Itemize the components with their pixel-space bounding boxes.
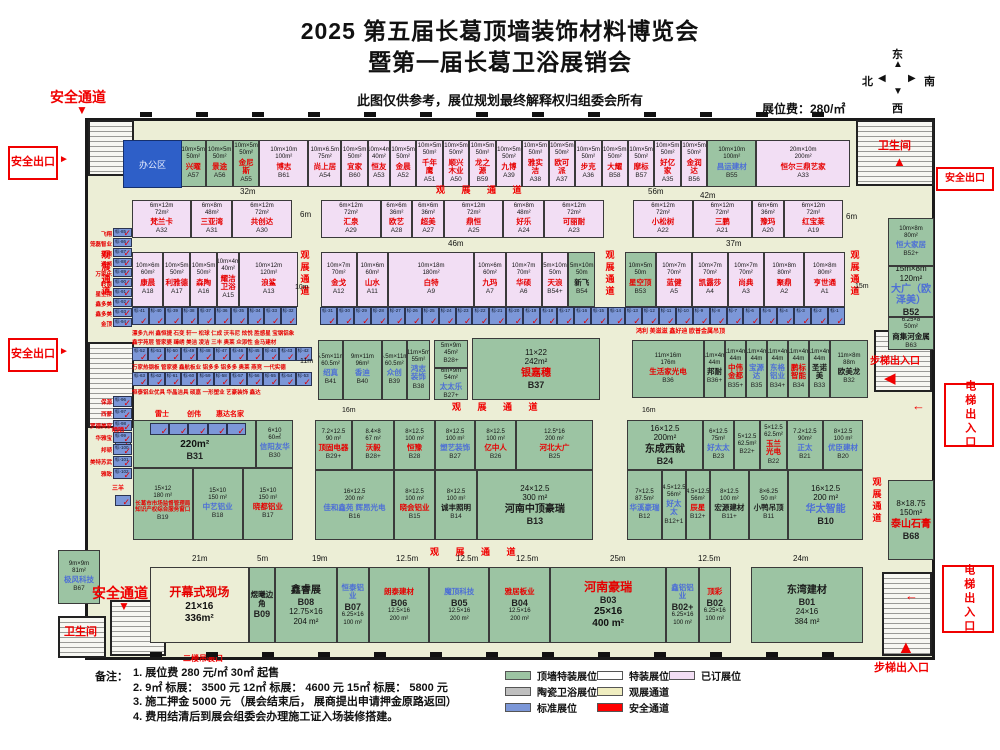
booth-B28: 8×12.5100 m²恒豫B28	[394, 420, 435, 470]
standard-booth-cell: 标-19✓	[523, 307, 540, 325]
standard-booth-cell: 标-93✓	[113, 308, 132, 317]
booth-name: 中艺铝业	[203, 503, 233, 511]
booth-dims: 5×12.5	[738, 434, 757, 441]
checkmark-icon: ✓	[222, 377, 230, 386]
booth-name: 摩标	[634, 163, 649, 171]
booth-area: 54m²	[444, 375, 458, 382]
booth-id: A23	[568, 227, 580, 235]
booth-id: B11+	[722, 513, 737, 521]
checkmark-icon: ✓	[786, 316, 794, 325]
vendor-names-label: 鸿利 美滋滋 鑫好迪 欧普金属吊顶	[636, 329, 725, 335]
checkmark-icon: ✓	[123, 308, 131, 317]
booth-dims: 6m×6m	[758, 203, 778, 210]
legend-swatch	[505, 671, 531, 680]
standard-booth-cell: 标-13✓	[625, 307, 642, 325]
vendor-label: 飞翔	[90, 230, 112, 238]
notes-label: 备注：	[95, 668, 128, 684]
standard-booth-cell: 标-40✓	[149, 307, 166, 325]
booth-area: 62.5m²	[738, 441, 757, 448]
booth-name: 星空顶	[629, 279, 652, 287]
standard-booth-cell: 标-97✓	[113, 408, 132, 419]
booth-area: 50m	[634, 270, 646, 277]
booth-id: B19	[157, 514, 169, 522]
checkmark-icon: ✓	[362, 316, 370, 325]
standard-booth-label: 标-41	[134, 308, 145, 314]
booth-name: 塑艺装饰	[440, 444, 470, 452]
booth-name: 东格铝业	[769, 364, 786, 381]
wall-columns	[150, 652, 863, 657]
booth-id: A24	[518, 227, 530, 235]
booth-name: 大耀	[607, 163, 622, 171]
booth-B55: 10m×10m100m²昌运建材B55	[707, 140, 756, 187]
vendor-label: 鑫多美	[90, 310, 112, 318]
standard-booth-label: 标-29	[356, 308, 367, 314]
booth-dims: 6m×12m	[651, 203, 675, 210]
standard-booth-cell: 标-49✓	[181, 347, 197, 361]
booth-id: B01	[799, 597, 816, 608]
checkmark-icon: ✓	[820, 316, 828, 325]
title-block: 2025 第五届长葛顶墙装饰材料博览会 暨第一届长葛卫浴展销会 此图仅供参考，展…	[0, 16, 1000, 109]
booth-name: 魔顶科技	[444, 588, 474, 596]
booth-B28+: 8.4×867 m²沃毅B28+	[352, 420, 394, 470]
standard-booth-cell: 标-41✓	[132, 307, 149, 325]
checkmark-icon: ✓	[173, 352, 181, 361]
standard-booth-cell: 标-37✓	[198, 307, 215, 325]
booth-id: A17	[171, 288, 183, 296]
booth-B20: 8×12.5100 m²优臣建材B20	[823, 420, 863, 470]
booth-A33: 20m×10m200m²恒尔三鼎艺家A33	[756, 140, 850, 187]
booth-name: 豫玛	[760, 218, 775, 226]
standard-booth-label: 标-5	[762, 308, 771, 314]
booth-name: 开幕式现场	[169, 586, 229, 599]
standard-booth-cell: 标-3✓	[794, 307, 811, 325]
booth-dims: 10m×5m	[471, 143, 495, 150]
booth-name: 好太太	[664, 500, 684, 517]
booth-name: 生活家光电	[649, 368, 687, 376]
dimension-label: 19m	[312, 555, 328, 563]
booth-area: 60m²	[365, 270, 379, 277]
booth-area: 44m	[772, 356, 784, 363]
booth-name: 森陶	[196, 279, 211, 287]
booth-name: 晓会铝业	[400, 504, 430, 512]
booth-dims: 24×12.5	[520, 484, 549, 494]
booth-name: 恒豫	[407, 444, 422, 452]
legend-swatch	[505, 687, 531, 696]
standard-booth-label: 标-17	[559, 308, 570, 314]
booth-name: 浪鲨	[261, 279, 276, 287]
booth-area: 50m²	[555, 150, 569, 157]
booth-dims: 10m×5m	[550, 143, 574, 150]
standard-booth-label: 标-26	[407, 308, 418, 314]
standard-booth-cell: 标-91✓	[113, 288, 132, 297]
booth-name: 顺兴木业	[445, 159, 467, 176]
elevator-exit-sign: 电梯出入口	[944, 383, 994, 447]
vendor-label: 雅致	[90, 470, 112, 478]
booth-area: 200 m²	[450, 616, 469, 623]
checkmark-icon: ✓	[189, 316, 197, 325]
compass: 东 北 南 西 ▲ ▼ ◀ ▶	[862, 46, 942, 118]
checkmark-icon: ✓	[272, 316, 280, 325]
checkmark-icon: ✓	[123, 248, 131, 257]
booth-id: B24	[657, 456, 674, 467]
dimension-label: 12.5m	[698, 555, 720, 563]
booth-A32: 6m×12m72m²梵兰卡A32	[132, 200, 191, 238]
booth-B34: 11m×4m44m鹏标智能B34	[788, 340, 809, 398]
checkmark-icon: ✓	[123, 258, 131, 267]
booth-B36+: 11m×4m44m邦耐B36+	[704, 340, 725, 398]
booth-B63: 6.25×850m²商集河金属B63	[888, 317, 934, 350]
booth-id: B13	[527, 516, 544, 527]
booth-id: B02+	[672, 602, 694, 613]
up-arrow-icon: ▲	[897, 638, 915, 657]
checkmark-icon: ✓	[464, 316, 472, 325]
standard-booth-label: 标-9	[695, 308, 704, 314]
standard-booth-cell: 标-54✓	[279, 372, 295, 386]
booth-name: 九博	[501, 163, 516, 171]
band-b4-top-mid: 7.2×12.590 m²顶固电器B29+8.4×867 m²沃毅B28+8×1…	[315, 420, 593, 470]
right-arrow-icon: ►	[59, 155, 69, 166]
booth-name: 三亚湾	[201, 218, 224, 226]
booth-dims: 6m×9m	[441, 368, 461, 375]
checkmark-icon: ✓	[718, 316, 726, 325]
booth-area: 100 m²	[705, 616, 724, 623]
booth-id: B33	[814, 382, 826, 390]
standard-booth-cell: 标-51✓	[148, 347, 164, 361]
booth-dims: 6m×12m	[339, 203, 363, 210]
legend-label: 特装展位	[629, 668, 669, 683]
standard-booth-strip: 标-93✓	[113, 308, 132, 317]
vendor-label: 晒晒	[112, 428, 124, 434]
standard-booth-label: 标-16	[576, 308, 587, 314]
booth-dims: 8×12.5	[405, 489, 424, 496]
booth-A17: 10m×5m50m²利雅德A17	[163, 252, 190, 307]
checkmark-icon: ✓	[396, 316, 404, 325]
booth-area: 150m²	[900, 508, 923, 518]
standard-booth-cell: 标-85✓	[113, 228, 132, 237]
booth-name: 恒尔三鼎艺家	[781, 163, 826, 171]
booth-id: B08	[298, 597, 315, 608]
checkmark-icon: ✓	[123, 446, 131, 455]
booth-name: 汇泉	[343, 218, 358, 226]
booth-id: B26	[490, 453, 502, 461]
booth-B53: 10m×5m50m星空顶B53	[625, 252, 656, 307]
band-row5: 开幕式现场21×16336m²煜曦边角B09鑫睿展B0812.75×16204 …	[150, 567, 863, 643]
booth-dims: 11×22	[525, 348, 547, 358]
booth-B23: 6×12.575m²好太太B23	[703, 420, 734, 470]
booth-id: A19	[808, 227, 820, 235]
standard-booth-strip: 标-88✓	[113, 258, 132, 267]
booth-id: B35+	[728, 382, 743, 390]
checkmark-icon: ✓	[271, 377, 279, 386]
booth-B24: 16×12.5200m²东成西就B24	[627, 420, 703, 470]
standard-booth-strip: 标-101✓	[113, 456, 132, 467]
booth-id: B52+	[903, 250, 918, 258]
booth-name: 鑫睿展	[291, 585, 321, 596]
standard-booth-cell: 标-27✓	[388, 307, 405, 325]
booth-dims: 11m×4m	[725, 349, 746, 356]
booth-id: B20	[837, 453, 849, 461]
booth-name: 鑫铝铝业	[668, 584, 696, 601]
booth-dims: 10m×8m	[772, 263, 796, 270]
vendor-label: 雷士	[155, 411, 169, 418]
booth-id: B28+	[365, 453, 380, 461]
standard-booth-label: 标-37	[200, 308, 211, 314]
standard-booth-cell: 标-1✓	[828, 307, 845, 325]
compass-west-label: 西	[892, 100, 903, 116]
checkmark-icon: ✓	[701, 316, 709, 325]
booth-area: 50m²	[904, 324, 918, 331]
booth-dims: 10m×6m	[136, 263, 160, 270]
booth-dims: 12.75×16	[289, 607, 323, 617]
booth-B27: 8×12.5100 m²塑艺装饰B27	[435, 420, 476, 470]
booth-name: 东湾建材	[787, 585, 827, 596]
booth-id: B18	[212, 512, 224, 520]
booth-B07: 恒泰铝业B076.25×16100 m²	[337, 567, 369, 643]
standard-booth-cell: 标-57✓	[230, 372, 246, 386]
booth-name: 佳和鑫苑 辉昂光电	[323, 504, 385, 512]
dimension-label: 16m	[342, 407, 356, 414]
booth-area: 55m²	[412, 357, 426, 364]
page-subtitle: 暨第一届长葛卫浴展销会	[0, 47, 1000, 78]
standard-booth-label: 标-11	[661, 308, 672, 314]
booth-A24: 6m×8m48m²好乐A24	[503, 200, 544, 238]
legend-label: 观展通道	[629, 684, 669, 699]
booth-area: 120m²	[900, 274, 923, 284]
booth-dims: 12.5×16	[448, 608, 470, 615]
checkmark-icon: ✓	[123, 410, 131, 419]
booth-B57: 10m×5m50m²摩标B57	[628, 140, 654, 187]
booth-B18: 15×10150 m²中艺铝业B18	[193, 468, 243, 540]
booth-dims: 6m×12m	[711, 203, 735, 210]
checkmark-icon: ✓	[123, 268, 131, 277]
booth-id: B67	[73, 585, 85, 593]
booth-name: 雅居板业	[505, 588, 535, 596]
standard-booth-cell: 标-22✓	[472, 307, 489, 325]
standard-booth-cell: 标-96✓	[113, 396, 132, 407]
booth-dims: 15×12	[154, 486, 171, 493]
booth-id: A55	[240, 176, 252, 184]
booth-name: 蓝健	[666, 279, 681, 287]
checkmark-icon: ✓	[173, 316, 181, 325]
booth-id: A13	[263, 288, 275, 296]
checkmark-icon: ✓	[633, 316, 641, 325]
checkmark-icon: ✓	[123, 458, 131, 467]
booth-B22: 5×12.562.5m²玉兰光电B22	[760, 420, 786, 470]
booth-B58: 10m×5m50m²大耀B58	[602, 140, 628, 187]
booth-dims: 5m×10m	[543, 263, 567, 270]
booth-A19: 6m×12m72m²红宝莱A19	[784, 200, 843, 238]
booth-dims: 16×12.5	[811, 484, 840, 494]
standard-booth-cell: 标-61✓	[165, 372, 181, 386]
booth-B04: 雅居板业B0412.5×16200 m²	[489, 567, 549, 643]
booth-id: A39	[503, 172, 515, 180]
booth-dims: 10m×5m	[444, 143, 468, 150]
legend-item: 特装展位	[597, 668, 669, 683]
vendor-names-label: 万家热钢板 管家婆 鑫航板业 铝多多 铝多多 奥莱 燕竞 一代实德	[132, 363, 312, 371]
legend-item: 已订展位	[669, 668, 741, 683]
standard-booth-label: 标-25	[424, 308, 435, 314]
checkmark-icon: ✓	[123, 422, 131, 431]
standard-booth-cell: ✓	[115, 495, 131, 506]
booth-B32: 11m×8m88m欧美龙B32	[830, 340, 868, 398]
booth-area: 50m²	[213, 154, 227, 161]
booth-id: B41	[325, 378, 337, 386]
booth-A31: 6m×8m48m²三亚湾A31	[191, 200, 232, 238]
booth-name: 河南中顶豪瑞	[505, 504, 565, 515]
booth-dims: 6×12.5	[709, 429, 728, 436]
standard-booth-cell: ✓	[150, 423, 169, 435]
booth-B28+: 5m×9m45m²B28+	[434, 340, 468, 368]
vendor-label: 华雅宝	[90, 434, 112, 442]
booth-B68: 8×18.75150m²泰山石膏B68	[888, 480, 934, 560]
booth-dims: 10m×7m	[698, 263, 722, 270]
band-mid-b37: 11×22242m²银嘉穗B37	[472, 338, 600, 400]
booth-area: 200 m²	[510, 616, 529, 623]
booth-A51: 10m×5m50m²千年鹰A51	[416, 140, 442, 187]
dimension-label: 11m	[300, 358, 313, 365]
standard-booth-label: 标-28	[373, 308, 384, 314]
checkmark-icon: ✓	[173, 377, 181, 386]
standard-booth-cell: 标-24✓	[439, 307, 456, 325]
standard-booth-label: 标-22	[474, 308, 485, 314]
booth-dims: 10m×10m	[270, 147, 297, 154]
checkmark-icon: ✓	[328, 316, 336, 325]
booth-B17: 15×10150 m²晓都铝业B17	[243, 468, 293, 540]
booth-name: 金戈	[331, 279, 346, 287]
note-line: 1. 展位费 280 元/㎡ 30㎡ 起售	[133, 666, 457, 681]
booth-id: B27	[449, 453, 461, 461]
checkmark-icon: ✓	[515, 316, 523, 325]
checkmark-icon: ✓	[140, 352, 148, 361]
booth-id: B07	[344, 602, 361, 613]
booth-name: 绍真	[323, 369, 338, 377]
booth-id: B03	[600, 595, 617, 606]
booth-name: 鼎恒	[466, 218, 481, 226]
safety-exit-sign: 安全出口	[8, 146, 58, 180]
band-b68: 8×18.75150m²泰山石膏B68	[888, 480, 934, 560]
dimension-label: 46m	[448, 240, 464, 248]
checkmark-icon: ✓	[549, 316, 557, 325]
standard-booth-strip: 标-86✓	[113, 238, 132, 247]
checkmark-icon: ✓	[199, 426, 207, 435]
standard-booth-cell: 标-34✓	[248, 307, 265, 325]
checkmark-icon: ✓	[287, 377, 295, 386]
checkmark-icon: ✓	[345, 316, 353, 325]
booth-dims: 10m×4m	[217, 259, 239, 266]
booth-id: B30	[269, 452, 281, 460]
booth-id: A27	[422, 227, 434, 235]
standard-booth-cell: 标-89✓	[113, 268, 132, 277]
booth-B13: 24×12.5300 m²河南中顶豪瑞B13	[477, 470, 593, 540]
booth-name: 恒泰铝业	[339, 584, 367, 601]
booth-area: 70m²	[517, 270, 531, 277]
vendor-names-label: 恒泰铝业优具 华晶洁具 硕嘉 一形塑业 艺豪装饰 鑫达	[132, 388, 312, 396]
booth-B12+1: 4.5×12.556m²好太太B12+1	[662, 470, 686, 540]
booth-name: 九玛	[482, 279, 497, 287]
checkmark-icon: ✓	[303, 377, 311, 386]
left-arrow-icon: ◀	[884, 371, 896, 387]
booth-area: 40m²	[221, 266, 235, 273]
booth-name: 昌运建材	[717, 163, 747, 171]
booth-B29+: 7.2×12.590 m²顶固电器B29+	[315, 420, 352, 470]
checkmark-icon: ✓	[498, 316, 506, 325]
booth-area: 384 m²	[794, 617, 819, 627]
booth-name: 博志	[276, 163, 291, 171]
booth-name: 好亿家	[656, 159, 678, 176]
booth-area: 80m²	[818, 270, 832, 277]
left-arrow-icon: ←	[905, 589, 918, 603]
standard-booth-cell: 标-5✓	[760, 307, 777, 325]
legend-item: 顶墙特装展位	[505, 668, 597, 683]
standard-booth-cell: 标-12✓	[642, 307, 659, 325]
booth-B16: 16×12.5200 m²佳和鑫苑 辉昂光电B16	[315, 470, 394, 540]
booth-id: B15	[409, 513, 421, 521]
restroom-sign: 卫生间	[64, 627, 97, 639]
booth-area: 44m	[730, 356, 742, 363]
booth-B05: 魔顶科技B0512.5×16200 m²	[429, 567, 489, 643]
booth-id: B63	[905, 342, 917, 350]
booth-dims: 6m×12m	[802, 203, 826, 210]
standard-booth-cell: 标-31✓	[320, 307, 337, 325]
booth-dims: 16×12.5	[650, 424, 679, 434]
standard-booth-label: 标-36	[217, 308, 228, 314]
checkmark-icon: ✓	[140, 377, 148, 386]
booth-dims: 11m×4m	[704, 353, 725, 360]
booth-id: B23	[713, 453, 725, 461]
booth-name: 红宝莱	[802, 218, 825, 226]
checkmark-icon: ✓	[123, 298, 131, 307]
booth-dims: 10m×6.5m	[311, 147, 340, 154]
booth-name: 兴曜	[186, 163, 201, 171]
standard-booth-strip: 标-89✓	[113, 268, 132, 277]
booth-name: 欧可派	[551, 159, 573, 176]
booth-id: A33	[797, 172, 809, 180]
booth-dims: 10m×5m	[629, 263, 653, 270]
booth-dims: 8×12.5	[486, 429, 505, 436]
booth-id: A51	[424, 176, 436, 184]
booth-area: 200m²	[654, 433, 677, 443]
elevator-exit-sign: 电梯出入口	[942, 565, 994, 633]
vendor-label: 三羊	[112, 486, 124, 492]
standard-booth-cell: 标-44✓	[263, 347, 279, 361]
booth-area: 200 m²	[390, 616, 409, 623]
booth-dims: 10m×7m	[512, 263, 536, 270]
booth-dims: 15×10	[209, 488, 226, 495]
dimension-label: 5m	[257, 555, 268, 563]
booth-id: A21	[717, 227, 729, 235]
booth-B06: 朗泰建材B0612.5×16200 m²	[369, 567, 429, 643]
standard-booth-cell: ✓	[169, 423, 188, 435]
standard-booth-cell: 标-38✓	[182, 307, 199, 325]
booth-area: 336m²	[185, 613, 214, 625]
checkmark-icon: ✓	[123, 470, 131, 479]
standard-booth-cell: 标-14✓	[608, 307, 625, 325]
booth-dims: 10m×5m	[234, 143, 258, 150]
booth-name: 诚丰照明	[441, 504, 471, 512]
booth-id: B54+	[547, 288, 562, 296]
aisle-gap	[604, 200, 634, 238]
office-area: 办公区	[123, 140, 182, 188]
booth-id: A5	[670, 288, 678, 296]
legend-label: 标准展位	[537, 700, 577, 715]
booth-A57: 10m×5m50m²兴曜A57	[180, 140, 206, 187]
vendor-label: 美特苏武	[90, 458, 112, 466]
booth-B01: 东湾建材B0124×16384 m²	[751, 567, 863, 643]
booth-area: 80m²	[904, 233, 918, 240]
booth-B35: 11m×4m44m宝源达B35	[746, 340, 767, 398]
page-title: 2025 第五届长葛顶墙装饰材料博览会	[0, 16, 1000, 47]
booth-dims: 10m×5m	[165, 263, 189, 270]
